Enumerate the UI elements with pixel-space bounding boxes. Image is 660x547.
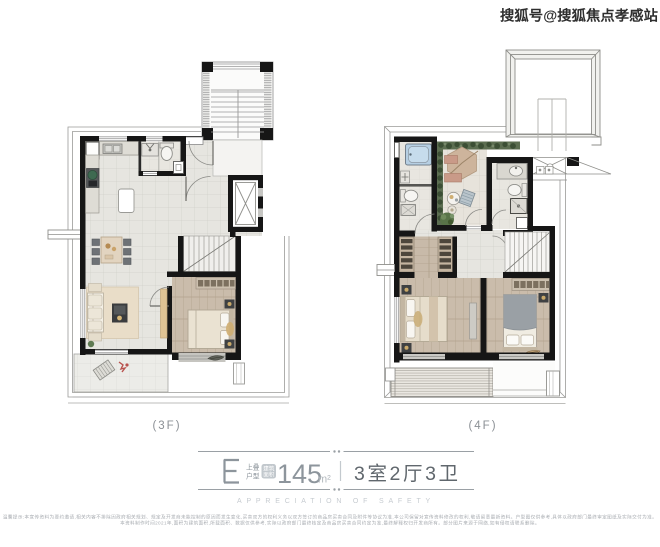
svg-text:3室2厅3卫: 3室2厅3卫 [354,463,461,485]
svg-text:(4F): (4F) [468,420,497,432]
svg-text:145: 145 [277,459,322,489]
svg-text:APPRECIATION OF SAFETY: APPRECIATION OF SAFETY [237,498,435,505]
svg-text:建筑: 建筑 [263,464,275,472]
svg-text:温馨提示:本宣传资料为要约邀请,相关内容不排除因政府相关规划: 温馨提示:本宣传资料为要约邀请,相关内容不排除因政府相关规划、规定及开发商未能控… [3,514,657,521]
svg-text:上叠: 上叠 [246,463,260,472]
svg-text:户型: 户型 [246,472,260,481]
svg-text:m²: m² [318,474,331,486]
svg-text:搜狐号@搜狐焦点孝感站: 搜狐号@搜狐焦点孝感站 [500,7,659,25]
svg-text:(3F): (3F) [152,420,181,432]
svg-text:本资料制作时间2021年,面积为建筑面积,所载面积、数据仅供: 本资料制作时间2021年,面积为建筑面积,所载面积、数据仅供参考,实际以政府部门… [120,520,540,527]
svg-text:面积: 面积 [263,471,275,479]
